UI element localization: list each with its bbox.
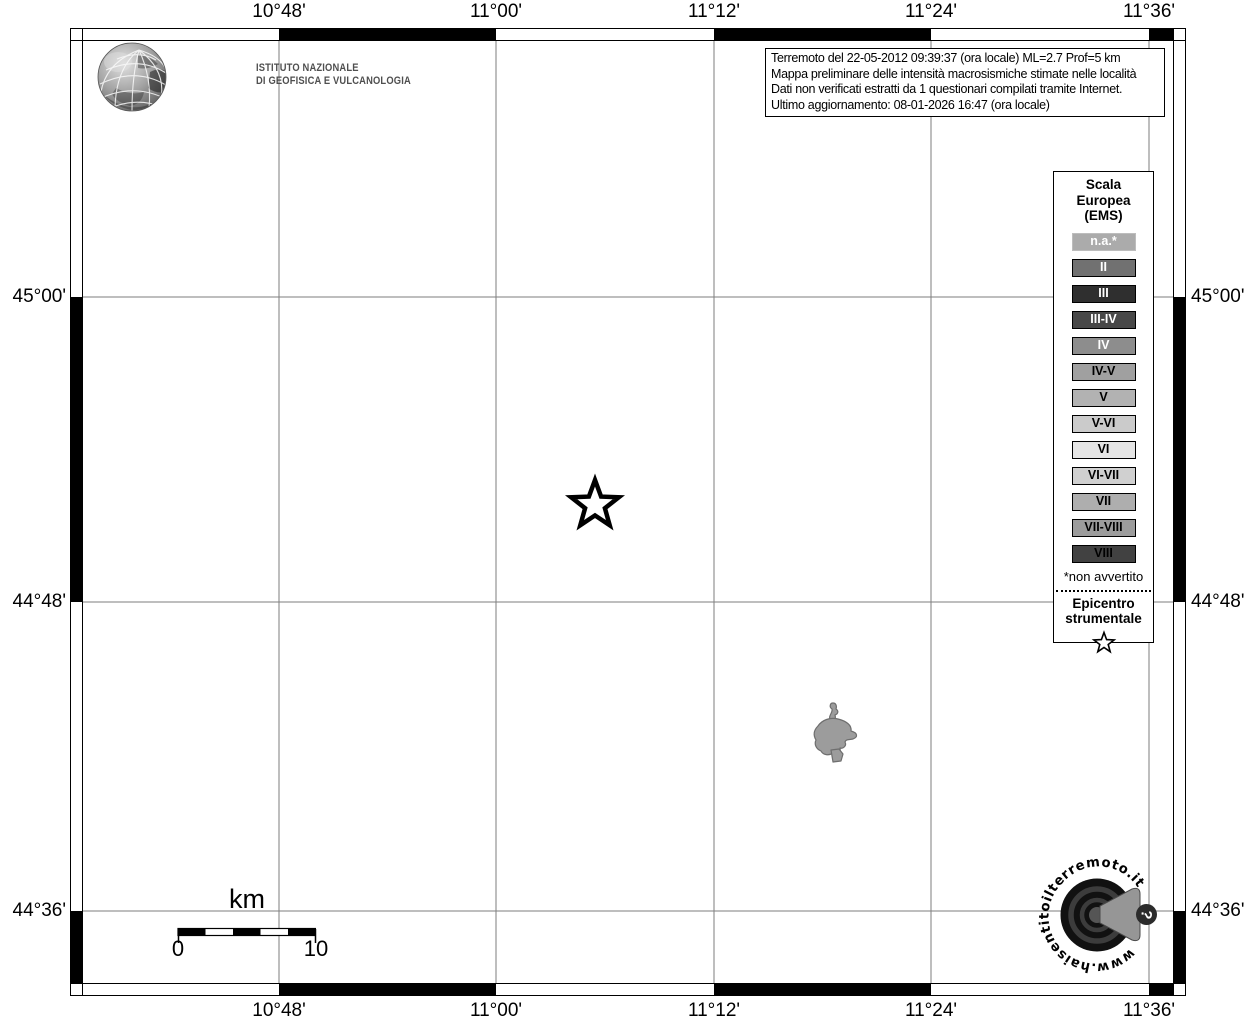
lat-label-left-1: 45°00' xyxy=(0,286,66,308)
event-info-line4: Ultimo aggiornamento: 08-01-2026 16:47 (… xyxy=(771,98,1162,114)
epicenter-star-legend-icon xyxy=(1091,630,1117,656)
lat-label-right-1: 45°00' xyxy=(1191,286,1256,308)
legend-title: Scala Europea (EMS) xyxy=(1054,177,1153,224)
ems-item-viii: VIII xyxy=(1072,545,1136,563)
graticule xyxy=(82,40,1174,984)
event-info-line2: Mappa preliminare delle intensità macros… xyxy=(771,67,1162,83)
scale-bar xyxy=(178,929,316,944)
lon-label-bottom-2: 11°00' xyxy=(446,1000,546,1022)
ems-legend: Scala Europea (EMS) n.a.* II III III-IV … xyxy=(1053,171,1154,643)
ems-item-vii: VII xyxy=(1072,493,1136,511)
event-info-line3: Dati non verificati estratti da 1 questi… xyxy=(771,82,1162,98)
lon-label-top-4: 11°24' xyxy=(881,1,981,23)
lon-label-bottom-3: 11°12' xyxy=(664,1000,764,1022)
lon-label-bottom-5: 11°36' xyxy=(1099,1000,1199,1022)
scale-bar-unit: km xyxy=(200,884,294,915)
legend-title-line1: Scala xyxy=(1054,177,1153,193)
ems-item-iv: IV xyxy=(1072,337,1136,355)
lon-label-top-1: 10°48' xyxy=(229,1,329,23)
ems-item-iii: III xyxy=(1072,285,1136,303)
lat-label-right-2: 44°48' xyxy=(1191,591,1256,613)
map-frame xyxy=(70,28,1186,996)
earthquake-intensity-map: www.haisentitoilterremoto.it ? xyxy=(0,0,1256,1024)
epicenter-star xyxy=(571,480,619,525)
event-info-box: Terremoto del 22-05-2012 09:39:37 (ora l… xyxy=(765,48,1165,117)
haisentito-watermark-logo: www.haisentitoilterremoto.it ? xyxy=(1036,854,1157,976)
lon-label-top-2: 11°00' xyxy=(446,1,546,23)
legend-epicenter-label: Epicentro strumentale xyxy=(1054,596,1153,627)
ems-item-ii: II xyxy=(1072,259,1136,277)
lat-label-left-2: 44°48' xyxy=(0,591,66,613)
ems-item-vi-vii: VI-VII xyxy=(1072,467,1136,485)
ems-item-na: n.a.* xyxy=(1072,233,1136,251)
event-info-line1: Terremoto del 22-05-2012 09:39:37 (ora l… xyxy=(771,51,1162,67)
legend-title-line3: (EMS) xyxy=(1054,208,1153,224)
lat-label-left-3: 44°36' xyxy=(0,900,66,922)
lon-label-top-3: 11°12' xyxy=(664,1,764,23)
lon-label-bottom-4: 11°24' xyxy=(881,1000,981,1022)
scale-bar-end: 10 xyxy=(296,936,336,962)
lon-label-top-5: 11°36' xyxy=(1099,1,1199,23)
legend-epicenter-line1: Epicentro xyxy=(1054,596,1153,612)
ingv-institute-name: ISTITUTO NAZIONALE DI GEOFISICA E VULCAN… xyxy=(256,62,411,88)
ems-item-vii-viii: VII-VIII xyxy=(1072,519,1136,537)
lat-label-right-3: 44°36' xyxy=(1191,900,1256,922)
ems-item-v: V xyxy=(1072,389,1136,407)
ems-item-vi: VI xyxy=(1072,441,1136,459)
ems-item-v-vi: V-VI xyxy=(1072,415,1136,433)
ingv-name-line2: DI GEOFISICA E VULCANOLOGIA xyxy=(256,75,411,88)
legend-divider xyxy=(1056,590,1151,592)
scale-bar-start: 0 xyxy=(158,936,198,962)
ems-item-iv-v: IV-V xyxy=(1072,363,1136,381)
lon-label-bottom-1: 10°48' xyxy=(229,1000,329,1022)
legend-footnote: *non avvertito xyxy=(1054,569,1153,584)
locality-intensity-polygon xyxy=(814,703,856,762)
ingv-name-line1: ISTITUTO NAZIONALE xyxy=(256,62,411,75)
legend-title-line2: Europea xyxy=(1054,193,1153,209)
ems-item-iii-iv: III-IV xyxy=(1072,311,1136,329)
ingv-globe-logo xyxy=(98,43,171,111)
legend-epicenter-line2: strumentale xyxy=(1054,611,1153,627)
